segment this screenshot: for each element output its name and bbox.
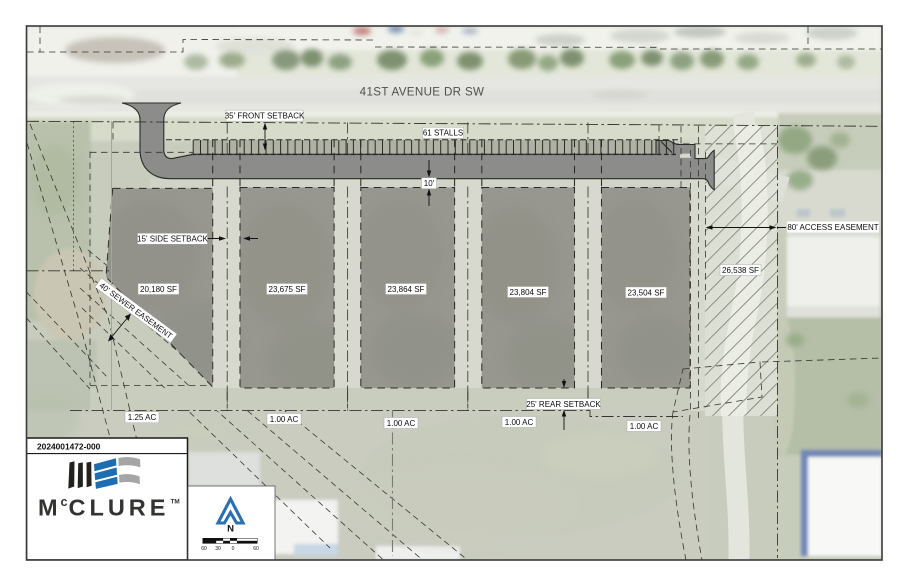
svg-text:25' REAR SETBACK: 25' REAR SETBACK [526, 400, 601, 409]
svg-text:15' SIDE SETBACK: 15' SIDE SETBACK [137, 235, 209, 244]
svg-text:M: M [38, 495, 60, 521]
svg-text:0: 0 [232, 546, 235, 552]
svg-text:2024001472-000: 2024001472-000 [37, 442, 101, 452]
svg-text:1.00 AC: 1.00 AC [630, 422, 659, 431]
svg-text:61 STALLS: 61 STALLS [423, 129, 463, 138]
svg-text:60: 60 [201, 546, 207, 552]
svg-text:60: 60 [253, 546, 259, 552]
svg-text:35' FRONT SETBACK: 35' FRONT SETBACK [225, 112, 305, 121]
svg-text:26,538 SF: 26,538 SF [722, 266, 759, 275]
svg-text:10': 10' [424, 179, 435, 188]
svg-text:30: 30 [215, 546, 221, 552]
svg-text:41ST AVENUE DR SW: 41ST AVENUE DR SW [360, 86, 485, 99]
svg-text:CLURE: CLURE [69, 495, 170, 521]
svg-text:23,675 SF: 23,675 SF [269, 285, 306, 294]
svg-text:1.00 AC: 1.00 AC [505, 418, 534, 427]
svg-text:N: N [227, 524, 234, 535]
svg-text:23,504 SF: 23,504 SF [628, 288, 665, 297]
svg-text:c: c [61, 495, 68, 509]
svg-text:23,864 SF: 23,864 SF [388, 285, 425, 294]
svg-text:1.25 AC: 1.25 AC [128, 413, 157, 422]
svg-text:1.00 AC: 1.00 AC [270, 415, 299, 424]
svg-text:20,180 SF: 20,180 SF [140, 285, 177, 294]
svg-text:1.00 AC: 1.00 AC [387, 419, 416, 428]
svg-text:TM: TM [171, 499, 180, 506]
svg-text:80' ACCESS EASEMENT: 80' ACCESS EASEMENT [787, 223, 878, 232]
svg-text:23,804 SF: 23,804 SF [510, 288, 547, 297]
